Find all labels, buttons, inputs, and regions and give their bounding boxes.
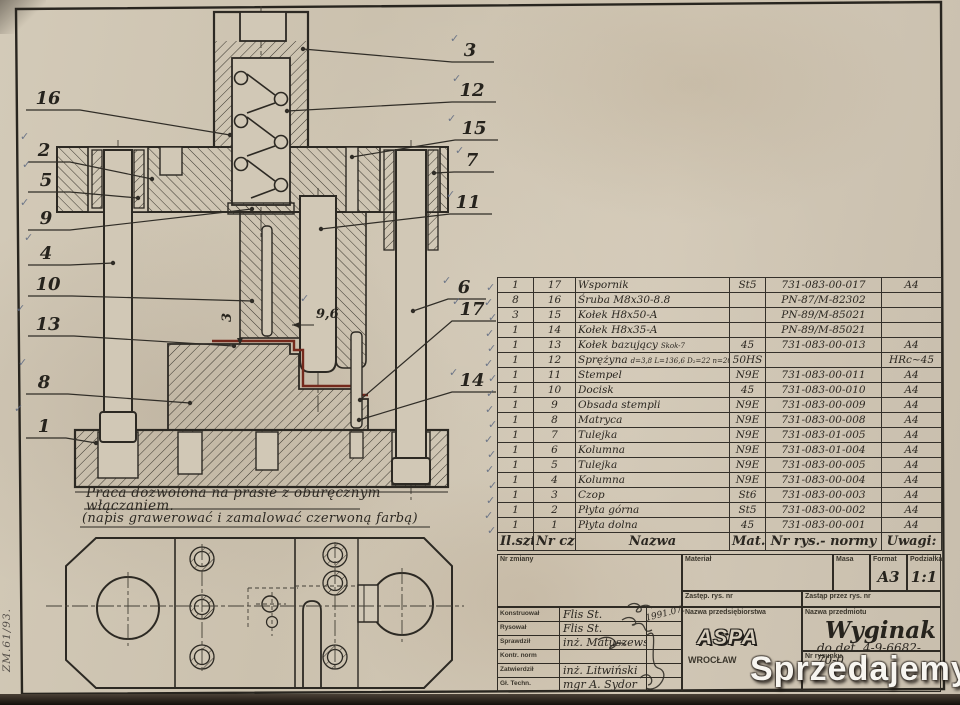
cell-material: N9E bbox=[730, 413, 766, 428]
cell-norm: PN-89/M-85021 bbox=[766, 323, 882, 338]
cell-material: N9E bbox=[730, 368, 766, 383]
cell-name: Płyta dolna bbox=[576, 518, 730, 533]
cell-name: Kołek bazującySkok-7 bbox=[576, 338, 730, 353]
signature-cell bbox=[647, 650, 681, 663]
cell-remarks: A4 bbox=[882, 338, 942, 353]
cell-remarks: A4 bbox=[882, 368, 942, 383]
cell-qty: 1 bbox=[498, 383, 534, 398]
check-mark: ✓ bbox=[22, 158, 31, 171]
cell-material bbox=[730, 308, 766, 323]
callout-15: 15 bbox=[461, 118, 486, 139]
role-row: Kontr. norm bbox=[498, 649, 681, 663]
cell-qty: 1 bbox=[498, 398, 534, 413]
cell-partno: 9 bbox=[534, 398, 576, 413]
cell-material bbox=[730, 293, 766, 308]
callout-8: 8 bbox=[37, 372, 51, 393]
role-label: Gł. Techn. bbox=[498, 678, 560, 691]
company-city: WROCŁAW bbox=[688, 655, 737, 665]
cell-name: Śruba M8x30-8.8 bbox=[576, 293, 730, 308]
cell-norm: 731-083-01-005 bbox=[766, 428, 882, 443]
check-mark: ✓ bbox=[484, 509, 493, 522]
cell-name: Wspornik bbox=[576, 278, 730, 293]
main-section-view bbox=[57, 6, 448, 500]
right-bushing-wall bbox=[428, 150, 438, 250]
table-row: 114Kołek H8x35-APN-89/M-85021 bbox=[498, 323, 942, 338]
stempel bbox=[300, 196, 336, 372]
table-row: 110Docisk45731-083-00-010A4 bbox=[498, 383, 942, 398]
engrave-note: (napis grawerować i zamalować czerwoną f… bbox=[82, 511, 418, 526]
check-mark: ✓ bbox=[20, 130, 29, 143]
left-column-foot bbox=[100, 412, 136, 442]
cell-material: N9E bbox=[730, 398, 766, 413]
cell-norm bbox=[766, 353, 882, 368]
cell-norm: 731-083-00-011 bbox=[766, 368, 882, 383]
cell-partno: 7 bbox=[534, 428, 576, 443]
cell-qty: 1 bbox=[498, 368, 534, 383]
role-value: inż. Matuszewski bbox=[560, 636, 647, 649]
callout-3: 3 bbox=[464, 40, 477, 61]
cell-name: Tulejka bbox=[576, 458, 730, 473]
cell-material: 45 bbox=[730, 338, 766, 353]
callout-13: 13 bbox=[35, 314, 60, 335]
role-row: KonstruowałFlis St. bbox=[498, 608, 681, 621]
cell-partno: 2 bbox=[534, 503, 576, 518]
company-label: Nazwa przedsiębiorstwa bbox=[683, 608, 801, 618]
cell-material: 50HS bbox=[730, 353, 766, 368]
cell-norm: 731-083-00-009 bbox=[766, 398, 882, 413]
cell-qty: 1 bbox=[498, 518, 534, 533]
table-row: 112Sprężynad=3,8 L=136,6 D₂=22 n=20,5 nc… bbox=[498, 353, 942, 368]
box-zastep: Zastęp. rys. nr bbox=[682, 591, 802, 607]
cell-remarks: A4 bbox=[882, 503, 942, 518]
callout-2: 2 bbox=[37, 140, 51, 161]
table-row: 113Kołek bazującySkok-745731-083-00-013A… bbox=[498, 338, 942, 353]
cell-qty: 3 bbox=[498, 308, 534, 323]
aspa-logo: ASPA bbox=[697, 626, 758, 650]
callout-5: 5 bbox=[40, 170, 53, 191]
cell-partno: 1 bbox=[534, 518, 576, 533]
cell-norm: 731-083-00-003 bbox=[766, 488, 882, 503]
roles-block: KonstruowałFlis St. RysowałFlis St. Spra… bbox=[497, 607, 682, 692]
table-row: 315Kołek H8x50-APN-89/M-85021 bbox=[498, 308, 942, 323]
cell-remarks bbox=[882, 308, 942, 323]
cell-norm: 731-083-00-008 bbox=[766, 413, 882, 428]
check-mark: ✓ bbox=[488, 372, 497, 385]
check-mark: ✓ bbox=[442, 274, 451, 287]
role-row: Gł. Techn.mgr A. Sydor bbox=[498, 677, 681, 691]
cell-remarks: A4 bbox=[882, 383, 942, 398]
footer-norm: Nr rys.- normy bbox=[766, 533, 882, 551]
kolek-bazujacy bbox=[262, 226, 272, 336]
watermark-text: Sprzedajemy bbox=[750, 650, 960, 688]
edge-annotation: ZM.61/93. bbox=[1, 552, 17, 672]
role-row: Sprawdziłinż. Matuszewski bbox=[498, 635, 681, 649]
cell-norm: 731-083-00-004 bbox=[766, 473, 882, 488]
signature-cell bbox=[647, 622, 681, 635]
cell-partno: 16 bbox=[534, 293, 576, 308]
kolek-14 bbox=[351, 332, 362, 428]
cell-partno: 10 bbox=[534, 383, 576, 398]
signature-cell bbox=[647, 636, 681, 649]
role-label: Zatwierdził bbox=[498, 664, 560, 677]
callout-1: 1 bbox=[38, 416, 51, 437]
cell-partno: 3 bbox=[534, 488, 576, 503]
podzialka-label: Podziałka bbox=[908, 555, 940, 565]
cell-material: 45 bbox=[730, 383, 766, 398]
footer-rem: Uwagi: bbox=[882, 533, 942, 551]
cell-name: Płyta górna bbox=[576, 503, 730, 518]
cell-material: 45 bbox=[730, 518, 766, 533]
cell-material: N9E bbox=[730, 458, 766, 473]
cell-qty: 1 bbox=[498, 473, 534, 488]
cell-remarks: A4 bbox=[882, 413, 942, 428]
cell-material bbox=[730, 323, 766, 338]
check-mark: ✓ bbox=[484, 433, 493, 446]
box-material: Materiał bbox=[682, 554, 833, 591]
cell-material: N9E bbox=[730, 428, 766, 443]
cell-partno: 14 bbox=[534, 323, 576, 338]
table-row: 816Śruba M8x30-8.8PN-87/M-82302 bbox=[498, 293, 942, 308]
check-mark: ✓ bbox=[485, 463, 494, 476]
callout-7: 7 bbox=[466, 150, 479, 171]
check-mark: ✓ bbox=[16, 302, 25, 315]
callout-16: 16 bbox=[35, 88, 61, 109]
footer-part: Nr cz. bbox=[534, 533, 576, 551]
plan-outline bbox=[66, 538, 452, 688]
cell-remarks: HRc~45 bbox=[882, 353, 942, 368]
callout-11: 11 bbox=[455, 192, 480, 213]
table-row: 11Płyta dolna45731-083-00-001A4 bbox=[498, 518, 942, 533]
check-mark: ✓ bbox=[486, 387, 495, 400]
cell-material: St5 bbox=[730, 503, 766, 518]
table-row: 117WspornikSt5731-083-00-017A4 bbox=[498, 278, 942, 293]
format-value: A3 bbox=[871, 568, 906, 586]
left-column bbox=[104, 150, 132, 412]
cell-remarks: A4 bbox=[882, 278, 942, 293]
cell-name: Kolumna bbox=[576, 443, 730, 458]
key-tab bbox=[358, 585, 378, 622]
footer-name: Nazwa bbox=[576, 533, 730, 551]
right-bushing-wall bbox=[384, 150, 394, 250]
cell-remarks bbox=[882, 293, 942, 308]
cell-norm: 731-083-00-013 bbox=[766, 338, 882, 353]
cell-qty: 1 bbox=[498, 413, 534, 428]
role-row: RysowałFlis St. bbox=[498, 621, 681, 635]
cell-norm: 731-083-00-002 bbox=[766, 503, 882, 518]
role-value: Flis St. bbox=[560, 608, 647, 621]
check-mark: ✓ bbox=[450, 32, 459, 45]
box-format: Format A3 bbox=[870, 554, 907, 591]
cell-remarks: A4 bbox=[882, 473, 942, 488]
table-row: 15TulejkaN9E731-083-00-005A4 bbox=[498, 458, 942, 473]
cell-qty: 1 bbox=[498, 503, 534, 518]
signature-cell bbox=[647, 608, 681, 621]
check-mark: ✓ bbox=[485, 403, 494, 416]
table-row: 13CzopSt6731-083-00-003A4 bbox=[498, 488, 942, 503]
cell-name: Sprężynad=3,8 L=136,6 D₂=22 n=20,5 ncz=1… bbox=[576, 353, 730, 368]
check-mark: ✓ bbox=[488, 418, 497, 431]
left-bushing-wall bbox=[92, 150, 102, 208]
dim-gap-value: 9,6 bbox=[316, 307, 339, 322]
table-row: 111StempelN9E731-083-00-011A4 bbox=[498, 368, 942, 383]
check-mark: ✓ bbox=[486, 494, 495, 507]
cell-name: Czop bbox=[576, 488, 730, 503]
cell-qty: 1 bbox=[498, 443, 534, 458]
cell-qty: 1 bbox=[498, 353, 534, 368]
role-label: Rysował bbox=[498, 622, 560, 635]
plate-step-pocket bbox=[160, 147, 182, 175]
cell-partno: 11 bbox=[534, 368, 576, 383]
format-label: Format bbox=[871, 555, 906, 565]
check-mark: ✓ bbox=[484, 357, 493, 370]
box-nr-zmiany: Nr zmiany bbox=[497, 554, 682, 607]
cell-partno: 13 bbox=[534, 338, 576, 353]
cell-qty: 8 bbox=[498, 293, 534, 308]
cell-partno: 6 bbox=[534, 443, 576, 458]
role-row: Zatwierdziłinż. Litwiński bbox=[498, 663, 681, 677]
cell-material: N9E bbox=[730, 473, 766, 488]
callout-12: 12 bbox=[459, 80, 484, 101]
check-mark: ✓ bbox=[300, 292, 309, 305]
cell-name: Kolumna bbox=[576, 473, 730, 488]
check-mark: ✓ bbox=[487, 448, 496, 461]
table-row: 19Obsada stempliN9E731-083-00-009A4 bbox=[498, 398, 942, 413]
cell-remarks: A4 bbox=[882, 398, 942, 413]
check-mark: ✓ bbox=[24, 231, 33, 244]
cell-remarks: A4 bbox=[882, 458, 942, 473]
box-podzialka: Podziałka 1:1 bbox=[907, 554, 941, 591]
signature-cell bbox=[647, 678, 681, 691]
check-mark: ✓ bbox=[486, 281, 495, 294]
cell-remarks: A4 bbox=[882, 488, 942, 503]
role-label: Sprawdził bbox=[498, 636, 560, 649]
role-label: Konstruował bbox=[498, 608, 560, 621]
cell-qty: 1 bbox=[498, 323, 534, 338]
role-value: Flis St. bbox=[560, 622, 647, 635]
cell-partno: 17 bbox=[534, 278, 576, 293]
cell-remarks: A4 bbox=[882, 428, 942, 443]
role-label: Kontr. norm bbox=[498, 650, 560, 663]
role-value: mgr A. Sydor bbox=[560, 678, 647, 691]
cell-norm: 731-083-01-004 bbox=[766, 443, 882, 458]
plan-view bbox=[46, 538, 464, 688]
cell-name: Obsada stempli bbox=[576, 398, 730, 413]
table-row: 17TulejkaN9E731-083-01-005A4 bbox=[498, 428, 942, 443]
cell-remarks bbox=[882, 323, 942, 338]
box-masa: Masa bbox=[833, 554, 870, 591]
cell-remarks: A4 bbox=[882, 518, 942, 533]
check-mark: ✓ bbox=[487, 524, 496, 537]
cell-norm: 731-083-00-005 bbox=[766, 458, 882, 473]
photo-background-strip bbox=[0, 694, 960, 705]
cell-name: Tulejka bbox=[576, 428, 730, 443]
callout-9: 9 bbox=[40, 208, 53, 229]
cell-norm: 731-083-00-001 bbox=[766, 518, 882, 533]
cell-name: Docisk bbox=[576, 383, 730, 398]
dim-depth-value: 3 bbox=[220, 313, 235, 322]
check-mark: ✓ bbox=[18, 356, 27, 369]
cell-material: N9E bbox=[730, 443, 766, 458]
box-zastap: Zastąp przez rys. nr bbox=[802, 591, 941, 607]
check-mark: ✓ bbox=[449, 366, 458, 379]
check-mark: ✓ bbox=[488, 311, 497, 324]
check-mark: ✓ bbox=[20, 196, 29, 209]
table-row: 14KolumnaN9E731-083-00-004A4 bbox=[498, 473, 942, 488]
check-mark: ✓ bbox=[455, 144, 464, 157]
callout-14: 14 bbox=[459, 370, 484, 391]
callout-4: 4 bbox=[40, 243, 53, 264]
scanned-drawing-photo: 9,6 3 16 2 5 9 4 10 bbox=[0, 0, 960, 705]
check-mark: ✓ bbox=[487, 342, 496, 355]
callout-17: 17 bbox=[459, 299, 485, 320]
cell-qty: 1 bbox=[498, 488, 534, 503]
check-mark: ✓ bbox=[452, 72, 461, 85]
subject-box: Nazwa przedmiotu Wyginak do det. 4-9-668… bbox=[802, 607, 941, 651]
cell-name: Kołek H8x35-A bbox=[576, 323, 730, 338]
cell-partno: 5 bbox=[534, 458, 576, 473]
check-mark: ✓ bbox=[488, 479, 497, 492]
cell-remarks: A4 bbox=[882, 443, 942, 458]
cell-partno: 8 bbox=[534, 413, 576, 428]
cell-qty: 1 bbox=[498, 338, 534, 353]
cell-partno: 12 bbox=[534, 353, 576, 368]
table-footer-row: Il.szt.Nr cz.NazwaMat.Nr rys.- normyUwag… bbox=[498, 533, 942, 551]
check-mark: ✓ bbox=[446, 188, 455, 201]
right-column bbox=[396, 150, 426, 462]
check-mark: ✓ bbox=[14, 402, 23, 415]
subject-name: Wyginak bbox=[825, 620, 940, 642]
slot bbox=[303, 601, 321, 688]
podzialka-value: 1:1 bbox=[908, 568, 940, 586]
table-row: 18MatrycaN9E731-083-00-008A4 bbox=[498, 413, 942, 428]
cell-qty: 1 bbox=[498, 458, 534, 473]
check-mark: ✓ bbox=[484, 296, 493, 309]
cell-name: Kołek H8x50-A bbox=[576, 308, 730, 323]
shank-notch bbox=[240, 12, 286, 41]
check-mark: ✓ bbox=[447, 112, 456, 125]
table-row: 16KolumnaN9E731-083-01-004A4 bbox=[498, 443, 942, 458]
cell-qty: 1 bbox=[498, 278, 534, 293]
material-label: Materiał bbox=[683, 555, 832, 565]
cell-partno: 15 bbox=[534, 308, 576, 323]
parts-table: 117WspornikSt5731-083-00-017A4 816Śruba … bbox=[497, 277, 942, 551]
callout-10: 10 bbox=[35, 274, 61, 295]
table-row: 12Płyta górnaSt5731-083-00-002A4 bbox=[498, 503, 942, 518]
check-mark: ✓ bbox=[485, 327, 494, 340]
check-mark: ✓ bbox=[452, 295, 461, 308]
masa-label: Masa bbox=[834, 555, 869, 565]
cell-norm: 731-083-00-017 bbox=[766, 278, 882, 293]
cell-qty: 1 bbox=[498, 428, 534, 443]
cell-norm: PN-89/M-85021 bbox=[766, 308, 882, 323]
cell-partno: 4 bbox=[534, 473, 576, 488]
watermark: Sprzedajemy.pl bbox=[750, 650, 960, 689]
role-value bbox=[560, 650, 647, 663]
zastep-label: Zastęp. rys. nr bbox=[683, 592, 801, 602]
nr-zmiany-label: Nr zmiany bbox=[498, 555, 681, 565]
cell-name: Stempel bbox=[576, 368, 730, 383]
cell-material: St5 bbox=[730, 278, 766, 293]
role-value: inż. Litwiński bbox=[560, 664, 647, 677]
right-column-foot bbox=[392, 458, 430, 484]
cell-name: Matryca bbox=[576, 413, 730, 428]
footer-mat: Mat. bbox=[730, 533, 766, 551]
footer-qty: Il.szt. bbox=[498, 533, 534, 551]
cell-material: St6 bbox=[730, 488, 766, 503]
cell-norm: PN-87/M-82302 bbox=[766, 293, 882, 308]
zastap-label: Zastąp przez rys. nr bbox=[803, 592, 940, 602]
cell-norm: 731-083-00-010 bbox=[766, 383, 882, 398]
signature-cell bbox=[647, 664, 681, 677]
